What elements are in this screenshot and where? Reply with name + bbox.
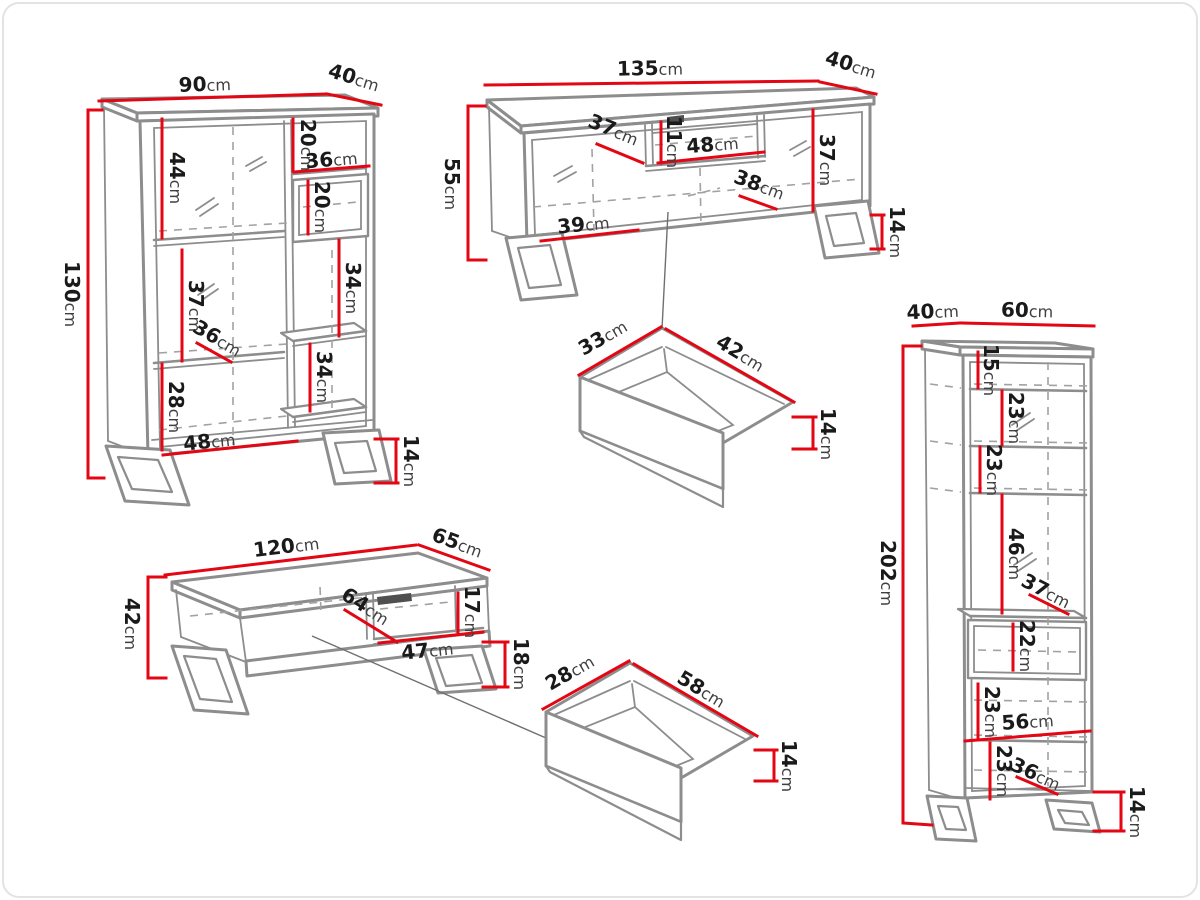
niche-wall [455, 586, 456, 632]
dim-line-cabinet-height [88, 110, 104, 478]
dim-line-table-height [148, 577, 166, 678]
coffee-table-drawing: 120cm 65cm 42cm 64cm 17cm 47cm 18cm [120, 522, 546, 738]
dim-label-tv-height: 55cm [440, 158, 464, 210]
edge-line [240, 618, 246, 662]
cabinet-drawing: 90cm 40cm 130cm 44cm 20cm 36cm 20cm 34cm… [60, 58, 423, 505]
dim-label-tv-leg: 14cm [885, 206, 909, 258]
dashed-line [930, 384, 961, 388]
dim-label-column-depth: 40cm [906, 298, 959, 325]
dim-label-tv-right-height: 37cm [815, 134, 839, 186]
dim-label-right-lower: 34cm [312, 351, 336, 403]
edge-line [487, 586, 489, 631]
dim-label-cabinet-leg: 14cm [399, 435, 423, 487]
dim-label-right-upper: 34cm [341, 262, 365, 314]
dim-label-table-leg: 18cm [509, 638, 533, 690]
dim-label-niche-height: 20cm [310, 181, 334, 233]
furniture-dimensions-diagram: 90cm 40cm 130cm 44cm 20cm 36cm 20cm 34cm… [0, 0, 1200, 900]
dashed-line [930, 441, 961, 445]
dim-label-column-leg: 14cm [1125, 786, 1149, 838]
dashed-line [930, 488, 961, 492]
dim-line-tvdrawer-height [793, 417, 816, 449]
dim-label-cabinet-width: 90cm [178, 71, 231, 97]
dim-line-tv-width [485, 81, 818, 85]
dim-line-column-width [962, 323, 1094, 326]
dim-label-tv-width: 135cm [617, 55, 684, 80]
edge-line [489, 107, 492, 231]
edge-line [176, 590, 181, 637]
dim-label-shelf-2: 23cm [982, 444, 1006, 496]
tall-cabinet-drawing: 40cm 60cm 202cm 15cm 23cm 23cm 46cm 37cm… [876, 298, 1149, 841]
dim-label-tv-niche-height: 11cm [662, 116, 686, 168]
dim-label-shelf-1: 23cm [1004, 392, 1028, 444]
dim-label-tv-depth: 40cm [823, 45, 880, 83]
dim-label-top-gap: 15cm [979, 344, 1003, 396]
dim-line-tv-height [468, 106, 486, 260]
dim-label-tvdrawer-height: 14cm [816, 408, 840, 460]
dim-label-glass-door: 46cm [1004, 528, 1028, 580]
dim-label-cabinet-depth: 40cm [326, 58, 383, 96]
dim-label-column-width: 60cm [1001, 298, 1054, 323]
dim-label-table-depth: 65cm [429, 522, 486, 562]
tv-drawer-drawing: 33cm 42cm 14cm [574, 313, 840, 507]
tvstand-leg-right-hole [826, 213, 864, 246]
dim-label-table-niche-height: 17cm [460, 586, 484, 638]
dim-label-inner-width: 56cm [1001, 707, 1055, 735]
dim-label-column-height: 202cm [876, 540, 900, 606]
dim-label-cabinet-height: 130cm [60, 261, 84, 327]
tv-stand-drawing: 135cm 40cm 55cm 37cm 11cm 48cm 37cm 38cm… [440, 45, 909, 329]
table-drawer-drawing: 28cm 58cm 14cm [541, 648, 801, 840]
dim-label-bottom-width: 48cm [182, 426, 236, 455]
dim-label-column-niche-height: 22cm [1015, 620, 1039, 672]
dim-line-tabledrawer-height [755, 750, 777, 781]
edge-line [104, 107, 108, 441]
dim-label-lower-left: 28cm [164, 381, 188, 433]
dim-label-tabledrawer-height: 14cm [777, 740, 801, 792]
dim-label-upper-left: 44cm [165, 152, 189, 204]
dim-label-table-height: 42cm [120, 598, 144, 650]
edge-line [925, 349, 929, 790]
